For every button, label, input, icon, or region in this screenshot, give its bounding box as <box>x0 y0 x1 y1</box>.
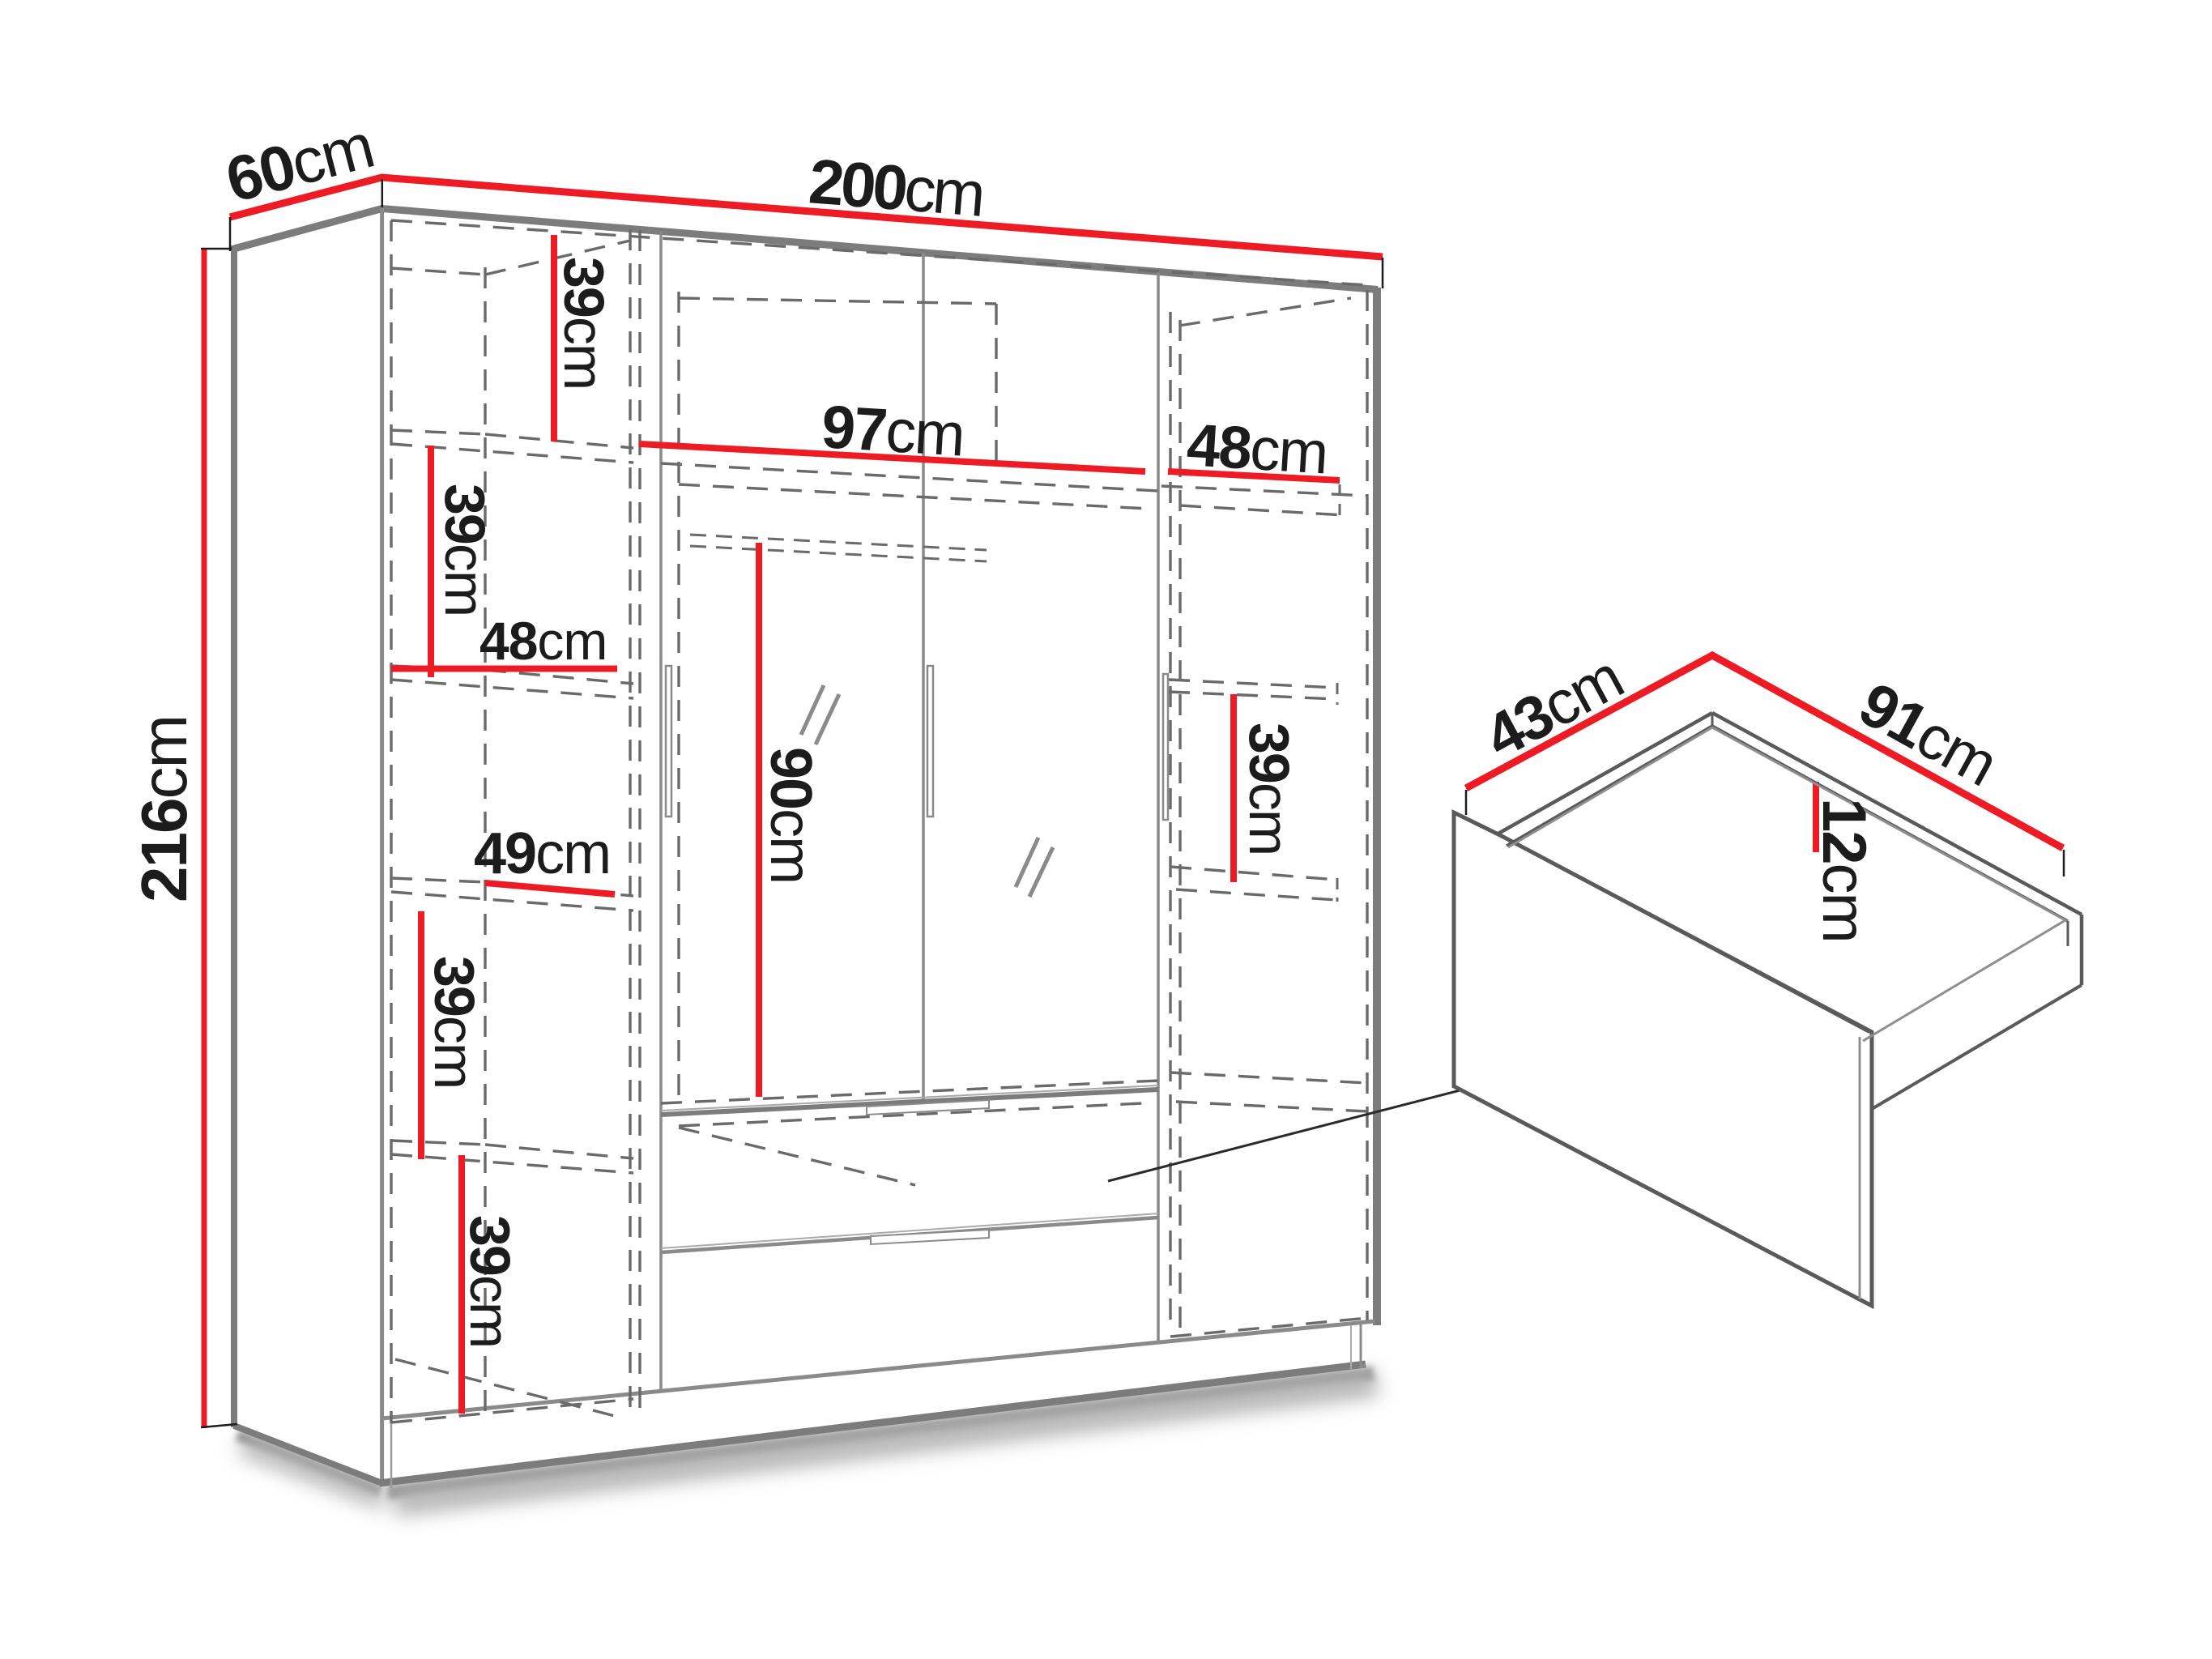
svg-text:49cm: 49cm <box>474 821 610 886</box>
svg-text:97cm: 97cm <box>820 392 965 469</box>
svg-text:39cm: 39cm <box>423 956 486 1088</box>
svg-text:200cm: 200cm <box>807 145 985 230</box>
svg-text:39cm: 39cm <box>433 484 497 616</box>
svg-text:12cm: 12cm <box>1809 798 1878 942</box>
svg-text:216cm: 216cm <box>128 716 200 902</box>
svg-text:39cm: 39cm <box>458 1215 522 1347</box>
svg-text:48cm: 48cm <box>1185 411 1329 486</box>
svg-text:48cm: 48cm <box>479 611 607 671</box>
svg-text:39cm: 39cm <box>1238 723 1301 855</box>
svg-text:90cm: 90cm <box>758 747 823 883</box>
svg-text:39cm: 39cm <box>552 257 616 389</box>
